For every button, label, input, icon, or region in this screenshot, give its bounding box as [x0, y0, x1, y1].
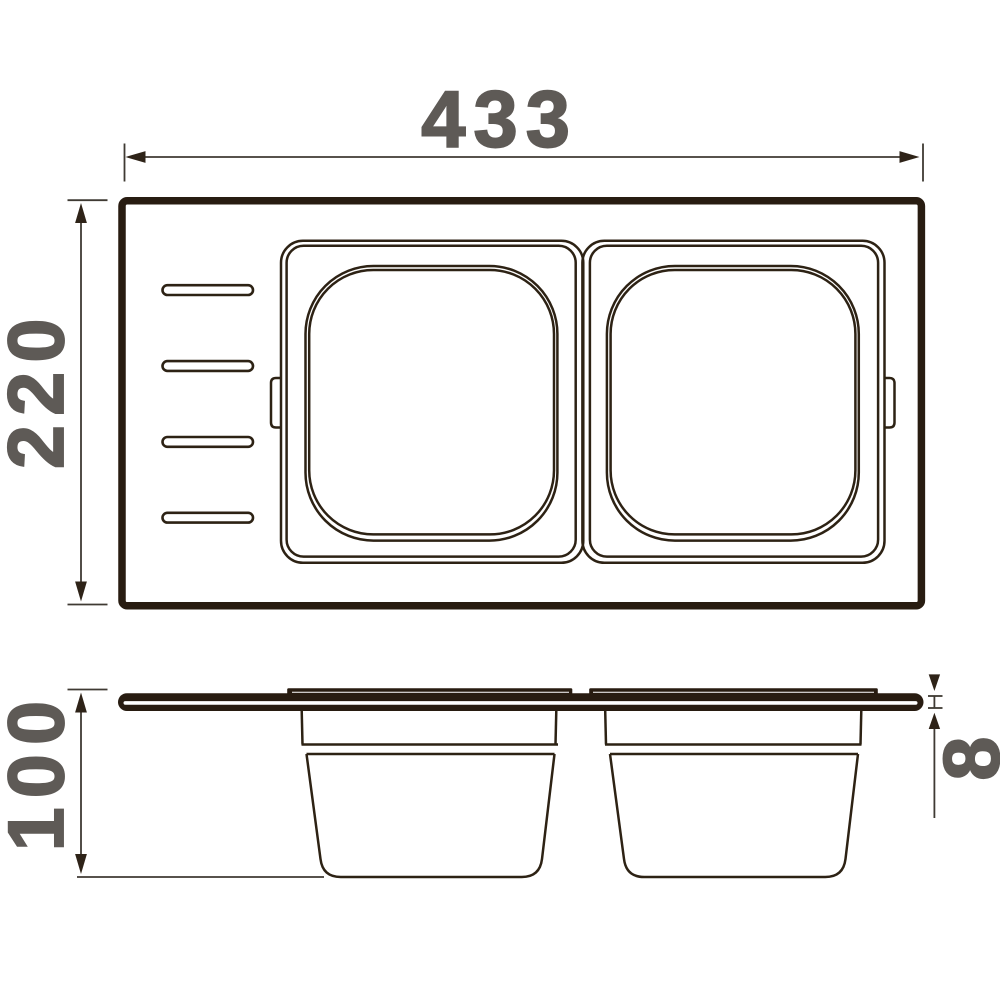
svg-text:100: 100 [0, 692, 80, 852]
svg-text:220: 220 [0, 309, 80, 469]
svg-text:8: 8 [927, 727, 1000, 780]
svg-text:433: 433 [421, 74, 578, 163]
